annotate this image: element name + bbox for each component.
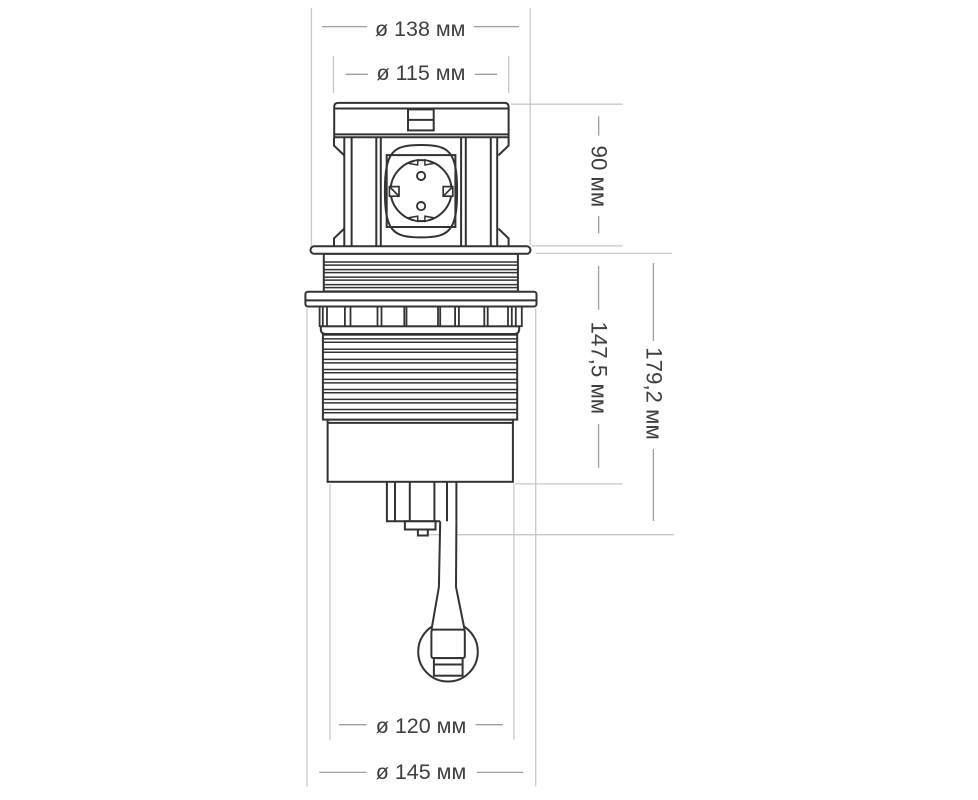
svg-text:90 мм: 90 мм — [587, 146, 612, 208]
svg-text:ø 115 мм: ø 115 мм — [376, 61, 465, 85]
svg-text:ø 120 мм: ø 120 мм — [376, 714, 467, 738]
svg-text:179,2 мм: 179,2 мм — [641, 347, 666, 440]
svg-text:ø 145 мм: ø 145 мм — [376, 760, 467, 784]
svg-text:ø 138 мм: ø 138 мм — [375, 17, 466, 41]
svg-text:147,5 мм: 147,5 мм — [587, 321, 612, 414]
